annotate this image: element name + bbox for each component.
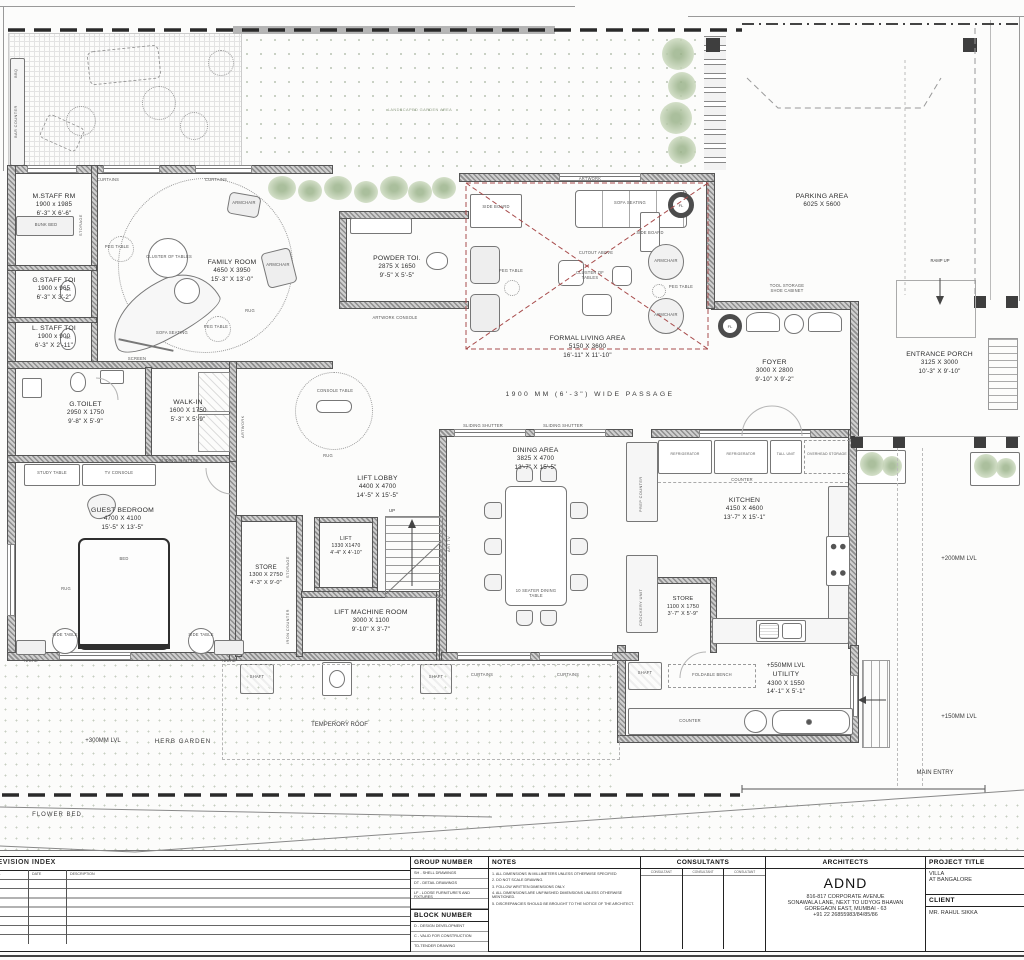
column-post [1006, 436, 1018, 448]
project-title-header: PROJECT TITLE [926, 857, 1024, 869]
main-entry-label: MAIN ENTRY [900, 770, 970, 776]
label-peg-table: PEG TABLE [100, 244, 134, 249]
site-boundary-left [3, 6, 4, 171]
wall [851, 302, 858, 438]
site-boundary-top [0, 6, 575, 7]
label-refrigerator: REFRIGERATOR [716, 452, 766, 456]
group-number-item: SH - SHELL DRAWINGS [411, 869, 488, 879]
label-cluster-of-tables: CLUSTER OF TABLES [568, 270, 612, 280]
divider [0, 870, 410, 871]
block-number-title: BLOCK NUMBER [411, 909, 488, 922]
consultant-cell: CONSULTANT [683, 869, 725, 949]
washing-machine [744, 710, 767, 733]
sliding-shutter-window [455, 430, 525, 436]
label-artwork: ARTWORK [240, 392, 245, 438]
wall [8, 362, 332, 368]
label-curtains: CURTAINS [548, 672, 588, 677]
consultant-label: CONSULTANT [724, 869, 765, 876]
label-foldable-bench: FOLDABLE BENCH [676, 672, 748, 677]
project-column: PROJECT TITLE VILLA AT BANGALORE CLIENT … [925, 857, 1024, 951]
label-rug: RUG [240, 308, 260, 313]
client-header: CLIENT [926, 894, 1024, 907]
herb-garden-level-label: +300MM LVL [72, 738, 134, 744]
window [8, 545, 14, 615]
architect-name: ADND [766, 875, 925, 891]
planter-shrub [408, 181, 432, 203]
label-curtains: CURTAINS [88, 177, 128, 182]
planter-shrub [882, 456, 902, 476]
notes-title: NOTES [489, 857, 640, 869]
label-iron-counter: IRON COUNTER [285, 586, 290, 644]
label-wc: WC [58, 336, 78, 340]
consultant-cell: CONSULTANT [724, 869, 765, 949]
label-bbq: BBQ [13, 58, 18, 78]
planter-shrub [432, 177, 456, 199]
planter-shrub [354, 181, 378, 203]
foyer-table [784, 314, 804, 334]
sink-drainer [759, 623, 779, 639]
room-label-kitchen-store: STORE1100 X 17503'-7" X 5'-9" [654, 596, 712, 618]
dining-chair [570, 574, 588, 591]
block-number-item: D - DESIGN DEVELOPMENT [411, 922, 488, 932]
lift-wall [315, 518, 377, 522]
planter-shrub [268, 176, 296, 200]
revision-col-rev-no: REV NO. [0, 872, 1, 876]
room-label-kitchen: KITCHEN4150 X 460013'-7" X 15'-1" [692, 496, 797, 522]
label-crockery-unit: CROCKERY UNIT [638, 562, 643, 626]
floor-lamp: FL [668, 192, 694, 218]
flower-bed-label: FLOWER BED [22, 812, 92, 818]
tall-unit [770, 440, 802, 474]
label-curtains: CURTAINS [462, 672, 502, 677]
room-label-guest-bedroom: GUEST BEDROOM4700 X 410015'-5" X 13'-5" [70, 506, 175, 532]
sliding-shutter-window [535, 430, 605, 436]
wall [8, 266, 96, 270]
sheet-frame-line [0, 955, 1024, 957]
consultants-title: CONSULTANTS [641, 857, 765, 869]
shrub [660, 102, 692, 134]
window [458, 653, 530, 659]
room-label-entrance-porch: ENTRANCE PORCH3125 X 300010'-3" X 9'-10" [872, 350, 1007, 376]
room-label-gtoilet: G.TOILET2950 X 17509'-8" X 5'-9" [38, 400, 133, 426]
lvl-150-label: +150MM LVL [928, 714, 990, 720]
label-curtains: CURTAINS [196, 177, 236, 182]
tub-drain [806, 719, 812, 725]
lvl-200-label: +200MM LVL [928, 556, 990, 562]
label-cutout-above: CUTOUT ABOVE [574, 250, 618, 255]
planter-shrub [860, 452, 884, 476]
architects-column: ARCHITECTS ADND 816-817 CORPORATE AVENUE… [765, 857, 925, 951]
room-label-lift-lobby: LIFT LOBBY4400 X 470014'-5" X 15'-5" [325, 474, 430, 500]
label-niche: NICHE [214, 658, 244, 663]
label-storage: STORAGE [285, 528, 290, 578]
foyer-bench [808, 312, 842, 332]
label-wc: WC [58, 288, 78, 292]
deck-chair [66, 106, 96, 136]
label-bed: BED [112, 556, 136, 561]
window [196, 166, 251, 172]
room-label-lift-machine-room: LIFT MACHINE ROOM3000 X 11009'-10" X 3'-… [306, 608, 436, 634]
project-line2: AT BANGALORE [926, 877, 1024, 886]
herb-garden-label: HERB GARDEN [138, 738, 228, 745]
bed [78, 538, 170, 650]
floor-plan-sheet: FL FL [0, 0, 1024, 960]
consultant-cell: CONSULTANT [641, 869, 683, 949]
label-artwork: ARTWORK [568, 176, 612, 181]
dining-chair [484, 574, 502, 591]
niche [214, 640, 244, 655]
label-tall-unit: TALL UNIT [770, 452, 802, 456]
ramp [896, 280, 976, 338]
planter-shrub [380, 176, 408, 200]
window [104, 166, 159, 172]
wall [236, 516, 302, 521]
landscaped-garden-label: LANDSCAPED GARDEN AREA [350, 107, 490, 112]
shower [22, 378, 42, 398]
dining-chair [484, 502, 502, 519]
label-peg-table: PEG TABLE [196, 324, 236, 329]
console-table [316, 400, 352, 413]
planter-shrub [324, 176, 352, 200]
group-number-item: DT - DETAIL DRAWINGS [411, 879, 488, 889]
lift-wall [373, 518, 377, 592]
garden-wall-strip [233, 26, 555, 34]
shrub [662, 38, 694, 70]
label-rug: RUG [318, 453, 338, 458]
room-label-walkin: WALK-IN1600 X 17505'-3" X 5'-9" [148, 398, 228, 424]
label-study-table: STUDY TABLE [26, 470, 78, 475]
landscaped-garden-area [240, 33, 732, 171]
flower-bed-area [0, 800, 1024, 850]
armchair [470, 294, 500, 332]
wall [652, 578, 716, 583]
floor-lamp: FL [718, 314, 742, 338]
window [28, 166, 76, 172]
label-armchair: ARMCHAIR [650, 312, 682, 317]
room-label-lift: LIFT1330 X14704'-4" X 4'-10" [320, 536, 372, 557]
side-board [470, 194, 522, 228]
label-prep-counter: PREP COUNTER [638, 450, 643, 512]
overhead-storage [804, 440, 850, 474]
label-armchair: ARMCHAIR [228, 200, 260, 205]
cluster-table [612, 266, 632, 286]
fl-label: FL [728, 324, 733, 329]
wall [8, 318, 96, 322]
cluster-table [582, 294, 612, 316]
room-label-lstaff-toi: L. STAFF TOI1900 x 9006'-3" X 2'-11" [16, 324, 92, 350]
temporary-roof-label: TEMPERORY ROOF [292, 722, 387, 728]
consultant-label: CONSULTANT [683, 869, 724, 876]
label-sliding-shutter: SLIDING SHUTTER [148, 458, 210, 463]
window [700, 431, 810, 437]
group-number-column: GROUP NUMBER SH - SHELL DRAWINGS DT - DE… [410, 857, 488, 951]
column-post [1006, 296, 1018, 308]
label-tool-storage: TOOL STORAGESHOE CABINET [758, 283, 816, 293]
column-post [963, 38, 977, 52]
label-sofa-seating: SOFA SEATING [146, 330, 198, 335]
room-label-formal-living: FORMAL LIVING AREA5150 X 360016'-11" X 1… [525, 334, 650, 360]
column-post [706, 38, 720, 52]
wall [849, 430, 856, 648]
site-boundary-right [1019, 16, 1020, 301]
revision-col-description: DESCRIPTION [70, 872, 95, 876]
lift-wall [315, 518, 319, 592]
label-counter: COUNTER [672, 718, 708, 723]
planter-shrub [974, 454, 998, 478]
porch-edge-line [855, 436, 1020, 437]
room-label-dining-area: DINING AREA3825 X 470013'-7" X 15'-5" [478, 446, 593, 472]
shrub [668, 72, 696, 100]
room-label-gstaff-toi: G.STAFF TOI1900 x 9656'-3" X 3'-2" [16, 276, 92, 302]
peg-table [652, 284, 666, 298]
label-console-table: CONSOLE TABLE [314, 388, 356, 393]
notes-column: NOTES 1. ALL DIMENSIONS IN MILLIMETERS U… [488, 857, 640, 951]
label-artwork-console: ARTWORK CONSOLE [368, 315, 422, 320]
wc [70, 372, 86, 392]
consultants-column: CONSULTANTS CONSULTANT CONSULTANT CONSUL… [640, 857, 765, 951]
bed-headboard [78, 644, 170, 649]
label-shaft: SHAFT [242, 674, 272, 679]
revision-col-date: DATE [32, 872, 41, 876]
client-name: MR. RAHUL SIKKA [926, 907, 1024, 919]
label-side-table: SIDE TABLE [50, 632, 80, 637]
architect-phone: +91 22 26855983/84/85/86 [766, 912, 925, 918]
niche [16, 640, 46, 655]
deck-chair [208, 50, 234, 76]
label-counter: COUNTER [724, 477, 760, 482]
hob [826, 536, 850, 586]
label-bar-counter: BAR COUNTER [13, 88, 18, 138]
label-peg-table: PEG TABLE [496, 268, 526, 273]
wall [707, 180, 714, 308]
ramp-up-label: RAMP UP [926, 258, 954, 263]
column-post [974, 436, 986, 448]
column-post [851, 436, 863, 448]
deck-table-round [142, 86, 176, 120]
block-number-item: C - VALID FOR CONSTRUCTION [411, 932, 488, 942]
counter-line [658, 482, 848, 483]
path-line [897, 448, 898, 786]
wall [230, 362, 236, 462]
powder-counter [350, 218, 412, 234]
dining-chair [570, 538, 588, 555]
entry-steps [862, 660, 890, 748]
label-shaft: SHAFT [421, 674, 451, 679]
divider [66, 870, 67, 944]
title-block: REVISION INDEX REV NO. DATE DESCRIPTION … [0, 856, 1024, 952]
fl-label: FL [679, 203, 684, 208]
room-label-utility: +550MM LVL UTILITY4300 X 155014'-1" X 5'… [736, 662, 836, 696]
sink-basin [782, 623, 802, 639]
armchair [470, 246, 500, 284]
label-cluster-of-tables: CLUSTER OF TABLES [146, 254, 192, 259]
wall [712, 302, 858, 309]
window [60, 653, 130, 659]
shaft-box [628, 662, 662, 690]
label-bunk-bed: BUNK BED [28, 222, 64, 227]
label-sofa-seating: SOFA SEATING [608, 200, 652, 205]
note-item: 4. ALL DIMENSIONS ARE UNFINISHED DIMENSI… [489, 889, 640, 900]
label-armchair: ARMCHAIR [262, 262, 294, 267]
dining-chair [540, 610, 557, 626]
group-number-title: GROUP NUMBER [411, 857, 488, 869]
architects-title: ARCHITECTS [766, 857, 925, 869]
dining-chair [516, 610, 533, 626]
revision-index-title: REVISION INDEX [0, 859, 56, 866]
label-overhead-storage: OVERHEAD STORAGE [804, 452, 850, 456]
window [540, 653, 612, 659]
label-refrigerator: REFRIGERATOR [660, 452, 710, 456]
deck-chair [180, 112, 208, 140]
planter-shrub [996, 458, 1016, 478]
label-sliding-shutter: SLIDING SHUTTER [532, 423, 594, 428]
label-shaft: SHAFT [630, 670, 660, 675]
room-label-foyer: FOYER3000 X 28009'-10" X 9'-2" [732, 358, 817, 384]
room-label-parking: PARKING AREA6025 X 5600 [762, 192, 882, 210]
label-art-tv: ART TV [446, 518, 451, 552]
label-peg-table: PEG TABLE [666, 284, 696, 289]
frame-line-above-titleblock [0, 850, 1024, 851]
label-sliding-shutter: SLIDING SHUTTER [452, 423, 514, 428]
column-post [893, 436, 905, 448]
stairs-up-label: UP [382, 508, 402, 513]
project-line1: VILLA [926, 869, 1024, 877]
refrigerator [658, 440, 712, 474]
dining-chair [570, 502, 588, 519]
path-line [922, 448, 923, 786]
consultant-label: CONSULTANT [641, 869, 682, 876]
washbasin [100, 370, 124, 384]
label-tv-console: TV CONSOLE [92, 470, 146, 475]
label-side-board: SIDE BOARD [634, 230, 666, 235]
passage-label: 1900 MM (6'-3") WIDE PASSAGE [455, 391, 725, 398]
spacer-row [411, 899, 488, 909]
planter-shrub [298, 180, 322, 202]
label-rug: RUG [56, 586, 76, 591]
label-side-table: SIDE TABLE [186, 632, 216, 637]
label-screen: SCREEN [120, 356, 154, 361]
block-number-item: TD-TENDER DRAWING [411, 942, 488, 952]
divider [28, 870, 29, 944]
peg-table [504, 280, 520, 296]
revision-rows [0, 879, 410, 943]
wall [340, 212, 346, 308]
note-item: 5. DISCREPANCIES SHOULD BE BROUGHT TO TH… [489, 899, 640, 906]
label-side-board: SIDE BOARD [476, 204, 516, 209]
site-boundary-top-right [688, 16, 1024, 17]
label-dining-table: 10 SEATER DINING TABLE [510, 588, 562, 598]
foyer-bench [746, 312, 780, 332]
parking-right-edge [990, 20, 991, 300]
group-number-item: LF - LOOSE FURNITURE'S AND FIXTURES [411, 889, 488, 899]
label-storage: STORAGE [78, 192, 83, 236]
room-label-powder-toi: POWDER TOI.2875 X 16509'-5" X 5'-5" [352, 254, 442, 280]
refrigerator [714, 440, 768, 474]
label-niche: NICHE [16, 658, 46, 663]
wall [340, 302, 468, 308]
dining-chair [484, 538, 502, 555]
staircase [385, 516, 443, 598]
label-armchair: ARMCHAIR [650, 258, 682, 263]
shrub [668, 136, 696, 164]
wall [618, 736, 858, 742]
